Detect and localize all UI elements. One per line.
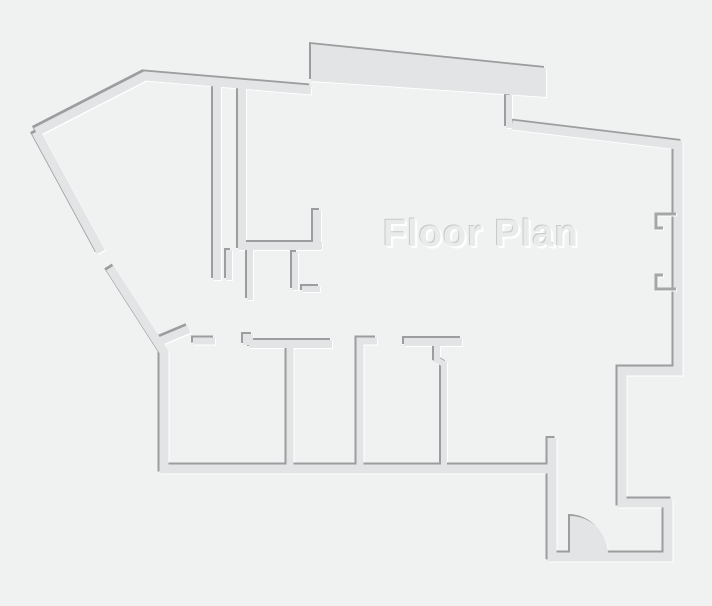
wall-top-bump [311,44,546,97]
wall-exterior-top-left [36,76,311,132]
wall-layer [36,44,678,561]
wall-exterior-diagonal-upper [36,132,101,252]
wall-exterior-right [512,125,678,557]
wall-partition-3 [437,342,444,469]
wall-jamb-diagonal [158,329,189,342]
wall-partition-2 [360,341,377,469]
floor-plan-title: Floor Plan [383,213,579,256]
right-opening-bracket-top [656,214,676,228]
wall-exterior-diagonal-lower-and-bottom [110,268,552,469]
floor-plan-canvas: Floor Plan [0,0,712,606]
floor-plan-drawing [0,0,712,606]
wall-interior-b [242,84,322,246]
entrance-door-swing [570,516,608,554]
right-opening-bracket-bottom [656,275,676,289]
right-wall-opening-marks [656,214,676,289]
